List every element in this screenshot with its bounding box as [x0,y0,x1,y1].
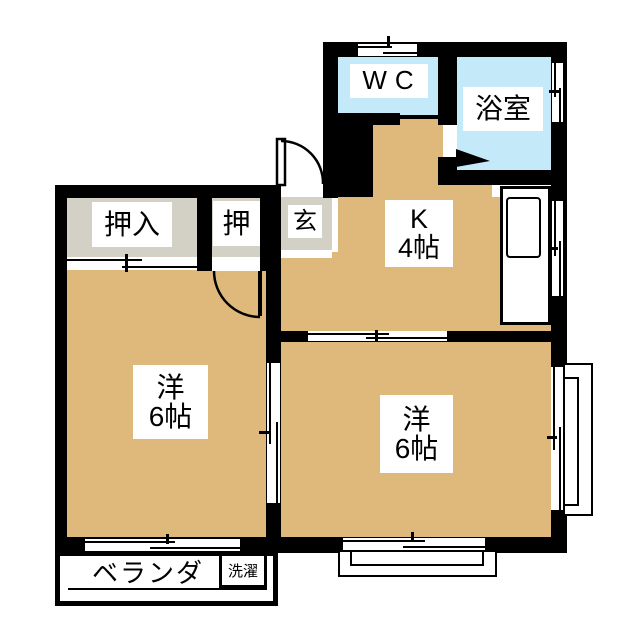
floor-plan: ベランダ 洗濯 WC 浴室 押入 押 玄 K 4帖 洋 6帖 洋 [0,0,640,640]
kitchen-sink [506,197,541,258]
tick-right-window [411,532,414,542]
western-left-label: 洋 6帖 [133,365,208,439]
side-bay-inner [563,377,579,506]
entrance-label: 玄 [288,205,322,238]
wall-left-outer [55,185,67,553]
wall-bath-bottom [438,170,551,185]
kitchen-label: K 4帖 [385,200,453,267]
veranda-label: ベランダ [78,556,218,586]
entrance-door-arc [281,141,323,184]
tick-side-window [547,436,557,439]
wall-wc-bath-divider-upper [438,42,457,125]
closet-large-label: 押入 [92,202,172,247]
tick-divider-door [259,431,271,434]
wall-closet-divider [197,198,212,271]
wall-main-top [55,185,280,198]
entrance-door-leaf [277,139,285,185]
entrance-step-side [332,197,338,252]
tick-bath-window [549,90,559,93]
tick-left-window [166,534,169,544]
closet-small-label: 押 [213,201,260,246]
wc-label: WC [350,64,428,98]
wall-wc-threshold [400,115,438,119]
wall-hall-left-block [323,113,373,197]
tick-kitchen-door [375,330,378,342]
right-room-step-inner [350,550,484,566]
tick-closet-door [125,254,128,272]
left-room-bottom-window [85,539,240,551]
tick-wc-window [387,36,390,48]
closet-large-sliding-door [67,257,197,270]
right-room-bottom-window [343,538,485,550]
laundry-label: 洗濯 [228,560,258,581]
hall-floor [373,125,443,197]
hall-floor-2 [443,185,492,197]
laundry-box: 洗濯 [219,553,267,588]
left-room-door-opening [212,258,260,271]
western-right-label: 洋 6帖 [380,395,453,473]
entrance-step [281,250,332,258]
bath-label: 浴室 [463,87,543,131]
